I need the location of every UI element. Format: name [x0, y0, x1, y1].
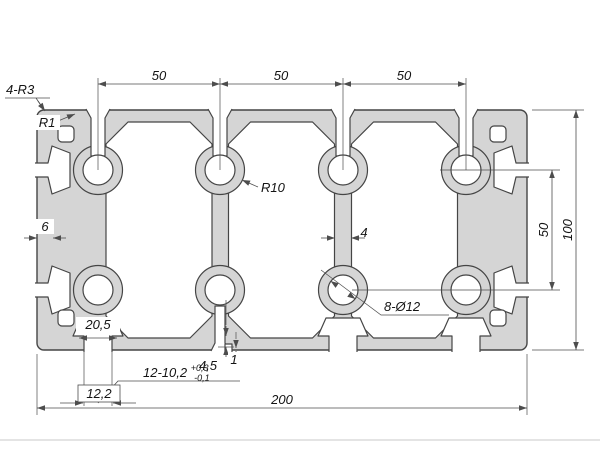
- dim-label-top-50-1: 50: [152, 68, 167, 83]
- corner-notch: [58, 310, 74, 326]
- callout-8-d12: 8-Ø12: [384, 299, 421, 314]
- dim-label-1: 1: [230, 352, 237, 367]
- dim-label-6: 6: [41, 219, 49, 234]
- core-hole: [83, 275, 113, 305]
- dim-label-20-5: 20,5: [84, 317, 111, 332]
- bay-cavity: [229, 122, 335, 338]
- callout-4-r3: 4-R3: [6, 82, 35, 97]
- dim-label-12-10-2-main: 12-10,2: [143, 365, 188, 380]
- corner-notch: [58, 126, 74, 142]
- technical-drawing: 50 50 50 50 100 200 20,5 12,2 12-10,2 +0…: [0, 0, 600, 450]
- drawing-canvas: 50 50 50 50 100 200 20,5 12,2 12-10,2 +0…: [0, 0, 600, 450]
- corner-notch: [490, 310, 506, 326]
- dim-label-4: 4: [360, 225, 367, 240]
- callout-r10: R10: [261, 180, 286, 195]
- dim-label-right-50: 50: [536, 222, 551, 237]
- leader-4-r3-arrow: [38, 101, 45, 111]
- dim-label-4-5: 4,5: [199, 358, 218, 373]
- dim-label-top-50-3: 50: [397, 68, 412, 83]
- dim-label-right-100: 100: [560, 218, 575, 240]
- dim-label-bottom-200: 200: [270, 392, 293, 407]
- callout-r1: R1: [39, 115, 56, 130]
- bay-cavity: [106, 122, 212, 338]
- dim-label-12-2: 12,2: [86, 386, 112, 401]
- dim-label-top-50-2: 50: [274, 68, 289, 83]
- core-hole: [205, 275, 235, 305]
- dim-label-12-10-2-sub: -0,1: [194, 373, 210, 383]
- corner-notch: [490, 126, 506, 142]
